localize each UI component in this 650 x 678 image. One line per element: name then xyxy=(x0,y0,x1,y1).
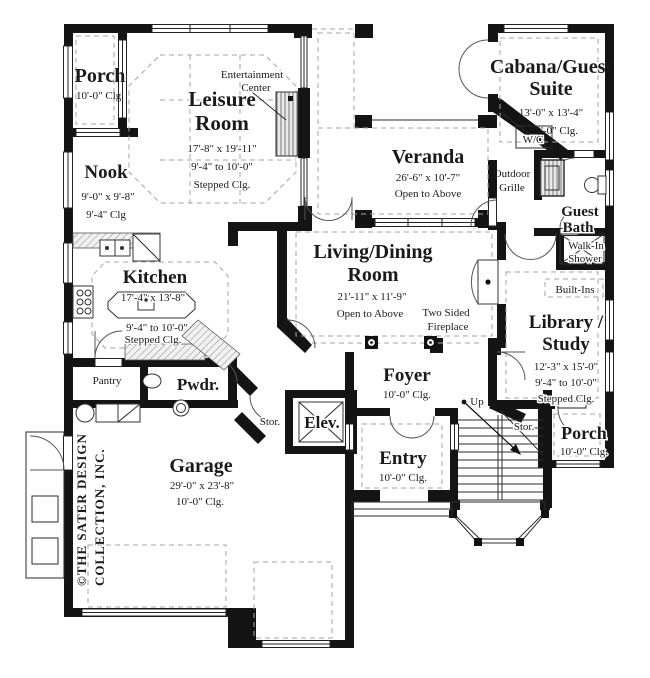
label-walk-in-shower: Walk-In Shower xyxy=(568,240,604,265)
room-living-dining: Living/Dining Room 21'-11" x 11'-9" Open… xyxy=(314,241,433,320)
glass-wall xyxy=(301,158,307,206)
french-door-leisure-living xyxy=(305,197,352,221)
library-foyer-door xyxy=(497,352,525,380)
room-dim: 9'-4" Clg xyxy=(86,209,126,221)
window xyxy=(556,461,600,468)
window xyxy=(375,219,475,227)
room-dim: 10'-0" Clg. xyxy=(176,496,224,508)
equipment-pad xyxy=(32,496,58,522)
label-powder: Pwdr. xyxy=(177,375,219,394)
window xyxy=(346,424,354,450)
room-dim: Stepped Clg. xyxy=(125,334,182,346)
label: Walk-In xyxy=(568,240,604,252)
powder-sink xyxy=(143,374,161,388)
garage-door xyxy=(262,641,330,648)
label-storage-1: Stor. xyxy=(260,416,281,428)
room-library-study: Library / Study 12'-3" x 15'-0" 9'-4" to… xyxy=(529,312,604,405)
window xyxy=(64,243,73,283)
room-dim: 10'-0" Clg. xyxy=(560,446,608,458)
label: Grille xyxy=(499,182,525,194)
room-dim: Stepped Clg. xyxy=(538,393,595,405)
room-name: Kitchen xyxy=(123,267,188,288)
french-door-library xyxy=(505,234,556,260)
window xyxy=(76,129,120,137)
room-name: Room xyxy=(195,111,249,135)
window xyxy=(64,322,73,354)
garage-door xyxy=(82,609,226,616)
window xyxy=(606,352,614,392)
room-garage: Garage 29'-0" x 23'-8" 10'-0" Clg. xyxy=(169,455,234,508)
room-name: Suite xyxy=(529,78,572,100)
room-dim: 10'-0" Clg. xyxy=(76,90,124,102)
counter xyxy=(125,344,205,360)
room-dim: 17'-4" x 13'-8" xyxy=(121,292,185,304)
window xyxy=(606,170,614,206)
copyright-text: ©THE SATER DESIGN COLLECTION, INC. xyxy=(74,433,107,586)
room-name: Study xyxy=(542,334,590,355)
room-dim: 13'-0" x 13'-4" xyxy=(519,107,583,119)
label-storage-2: Stor. xyxy=(514,421,535,433)
room-name: Porch xyxy=(561,423,607,443)
copyright-line: COLLECTION, INC. xyxy=(92,448,107,586)
room-name: Entry xyxy=(379,448,427,469)
room-name: Foyer xyxy=(383,365,431,386)
room-name: Cabana/Guest xyxy=(490,56,613,78)
label-up: Up xyxy=(470,396,484,408)
copyright-line: ©THE SATER DESIGN xyxy=(74,433,89,586)
room-dim: 10'-0" Clg. xyxy=(383,389,431,401)
guest-bath-fixtures xyxy=(585,176,607,194)
window xyxy=(606,300,614,340)
outdoor-grille-unit xyxy=(540,160,564,196)
powder-toilet xyxy=(173,400,189,416)
french-door-cabana xyxy=(459,40,488,98)
room-dim: 9'-0" x 9'-8" xyxy=(81,191,134,203)
room-nook: Nook 9'-0" x 9'-8" 9'-4" Clg xyxy=(81,162,134,221)
entry-stoop xyxy=(352,502,452,516)
room-porch-bottom-right: Porch 10'-0" Clg. xyxy=(560,423,608,458)
refrigerator xyxy=(133,234,160,261)
window xyxy=(64,152,73,208)
room-veranda: Veranda 26'-6" x 10'-7" Open to Above xyxy=(392,146,465,200)
garage-side-door-arc xyxy=(30,436,64,470)
room-cabana-guest-suite: Cabana/Guest Suite 13'-0" x 13'-4" 10'-0… xyxy=(490,56,613,137)
label: Fireplace xyxy=(428,321,469,333)
room-name: Library / xyxy=(529,312,604,333)
room-dim: 9'-4" to 10'-0" xyxy=(126,322,188,334)
room-dim: Stepped Clg. xyxy=(194,179,251,191)
room-dim: 10'-0" Clg. xyxy=(379,472,427,484)
window xyxy=(504,25,568,33)
label-pantry: Pantry xyxy=(93,375,122,387)
garage-door-header xyxy=(254,562,332,638)
room-name: Veranda xyxy=(392,146,465,168)
label-built-ins: Built-Ins xyxy=(555,284,594,296)
room-entry: Entry 10'-0" Clg. xyxy=(379,448,427,484)
room-name: Bath xyxy=(563,220,595,236)
garage-doors xyxy=(82,545,332,648)
entertainment-center-unit xyxy=(252,92,298,156)
label: Entertainment xyxy=(221,69,283,81)
room-name: Porch xyxy=(75,65,126,87)
label-outdoor-grille: Outdoor Grille xyxy=(494,168,531,194)
foyer-columns xyxy=(365,336,437,349)
room-dim: 9'-4" to 10'-0" xyxy=(191,161,253,173)
label: Two Sided xyxy=(422,307,470,319)
french-door-foyer-entry xyxy=(390,416,434,438)
room-name: Living/Dining xyxy=(314,241,433,263)
room-name: Garage xyxy=(169,455,232,477)
room-leisure: Leisure Room 17'-8" x 19'-11" 9'-4" to 1… xyxy=(187,87,256,191)
window xyxy=(451,424,459,450)
room-dim: Open to Above xyxy=(395,188,462,200)
range xyxy=(73,286,93,318)
room-dim: 17'-8" x 19'-11" xyxy=(187,143,256,155)
room-dim: Open to Above xyxy=(337,308,404,320)
fireplace-symbol xyxy=(471,260,498,304)
toilet xyxy=(585,178,600,193)
floor-plan-page: Porch 10'-0" Clg. Leisure Room 17'-8" x … xyxy=(0,0,650,678)
label: Shower xyxy=(568,253,602,265)
label-wc: W/C xyxy=(523,134,544,146)
room-name: Guest xyxy=(561,204,599,220)
label: Center xyxy=(241,82,271,94)
room-guest-bath: Guest Bath xyxy=(561,204,599,236)
kitchen-sink xyxy=(100,240,130,256)
room-porch-top-left: Porch 10'-0" Clg. xyxy=(75,65,126,102)
window xyxy=(606,112,614,160)
label: Outdoor xyxy=(494,168,531,180)
glass-wall xyxy=(301,36,307,88)
room-name: Room xyxy=(347,264,398,286)
room-dim: 29'-0" x 23'-8" xyxy=(170,480,234,492)
pantry-door xyxy=(95,331,122,367)
window xyxy=(64,46,73,98)
floor-plan-drawing: Porch 10'-0" Clg. Leisure Room 17'-8" x … xyxy=(0,0,650,678)
equipment-pad xyxy=(32,538,58,564)
room-dim: 26'-6" x 10'-7" xyxy=(396,172,460,184)
room-dim: 21'-11" x 11'-9" xyxy=(338,291,407,303)
garage-door-header xyxy=(88,545,226,607)
utility-counter xyxy=(76,404,140,422)
room-name: Nook xyxy=(84,162,128,183)
window xyxy=(152,25,268,33)
room-dim: 12'-3" x 15'-0" xyxy=(534,361,598,373)
label-two-sided-fireplace: Two Sided Fireplace xyxy=(422,307,470,333)
stair-bay-window xyxy=(449,502,549,546)
room-dim: 9'-4" to 10'-0" xyxy=(535,377,597,389)
label-elevator: Elev. xyxy=(304,413,339,432)
room-foyer: Foyer 10'-0" Clg. xyxy=(383,365,431,401)
utility-sink xyxy=(76,404,94,422)
